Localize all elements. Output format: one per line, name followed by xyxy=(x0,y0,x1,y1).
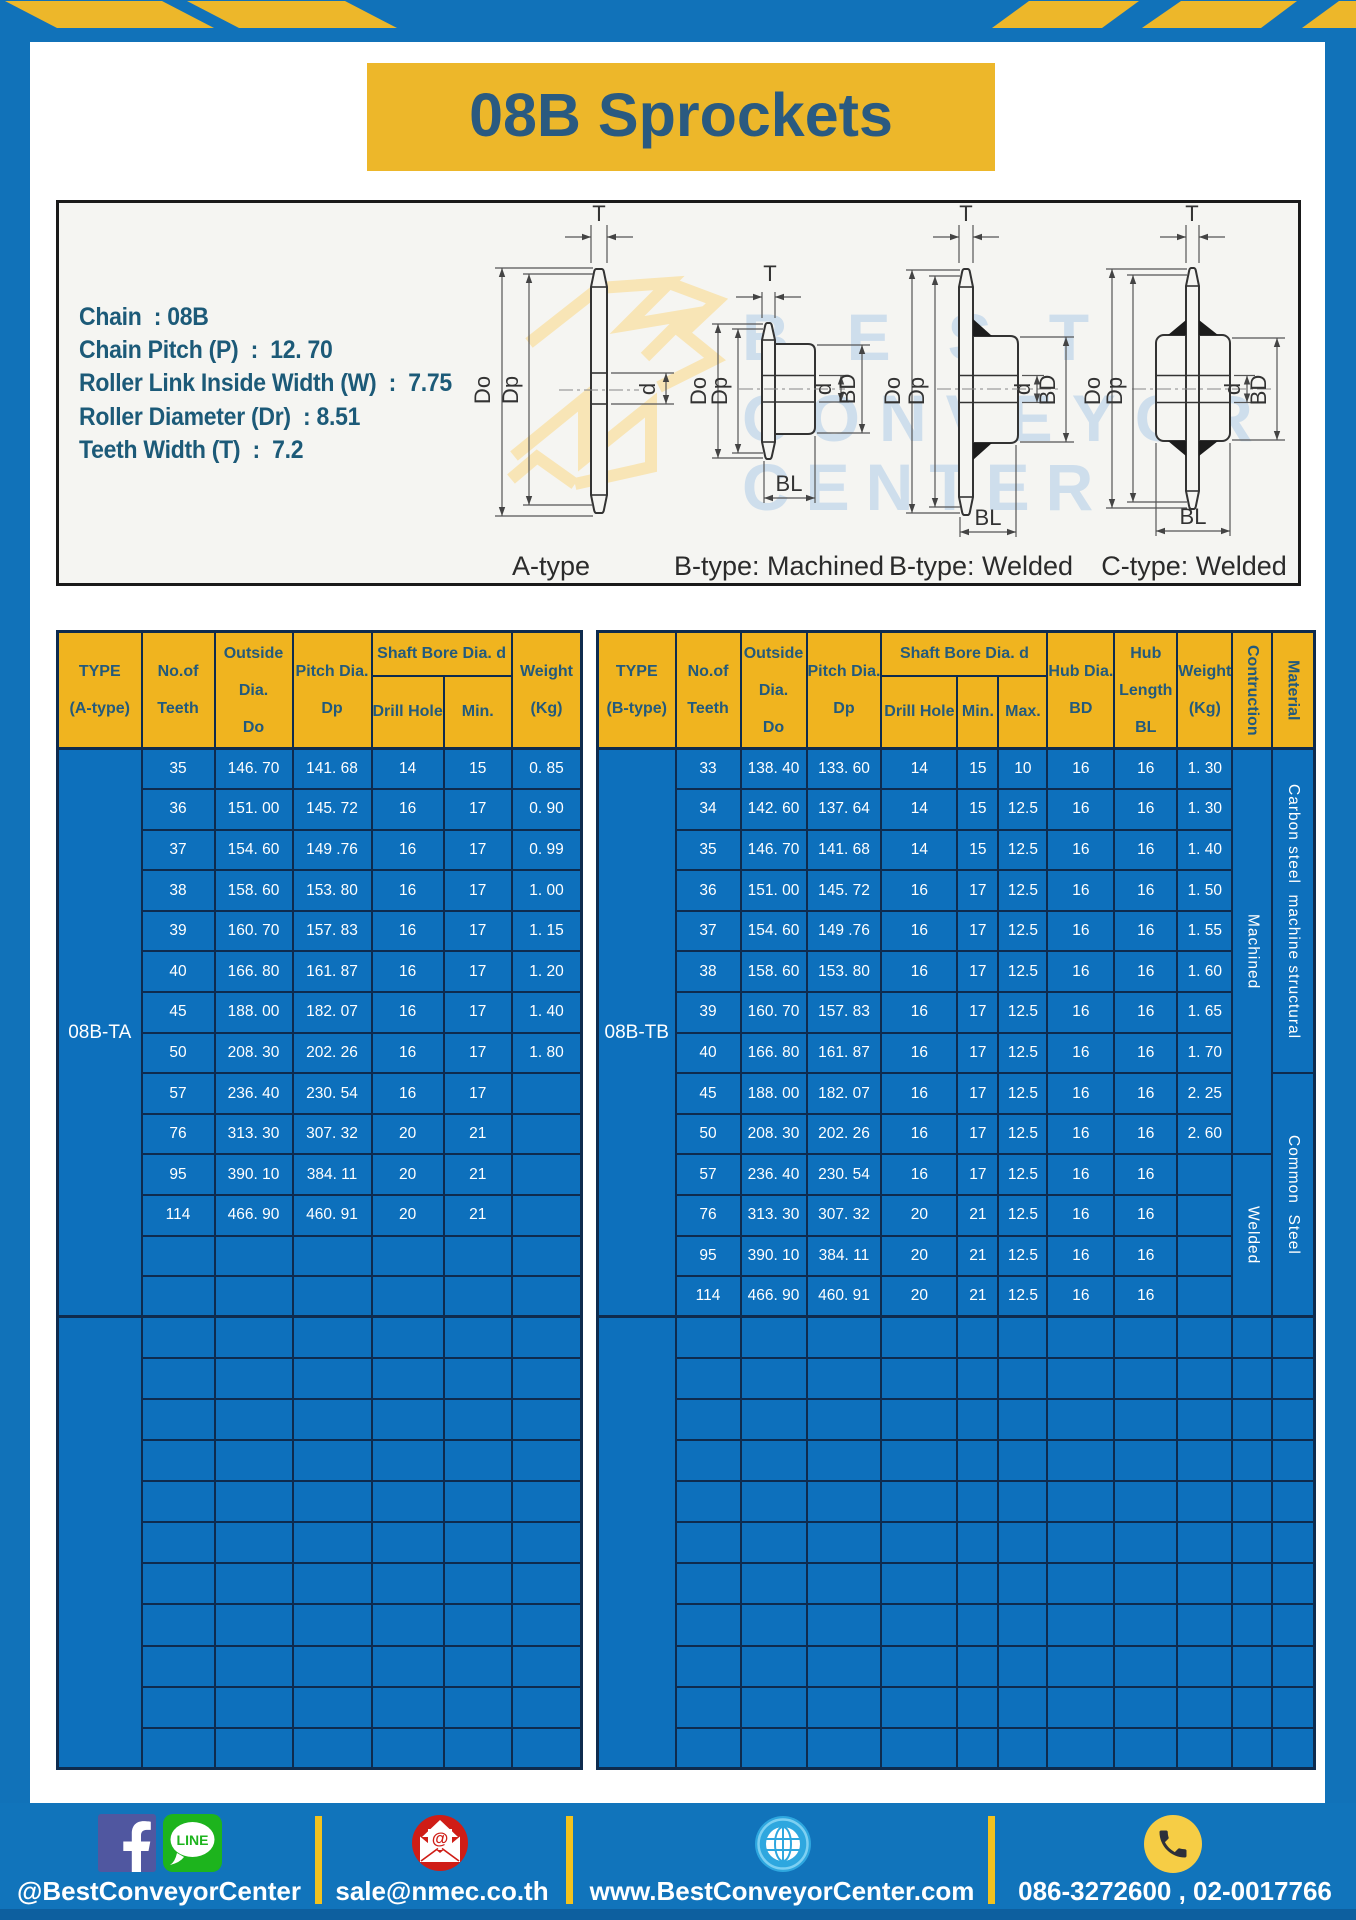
svg-text:Do: Do xyxy=(880,377,905,405)
svg-text:d: d xyxy=(811,383,836,395)
svg-text:d: d xyxy=(635,383,660,395)
svg-text:T: T xyxy=(1185,203,1198,226)
svg-text:LINE: LINE xyxy=(177,1832,209,1848)
svg-text:Do: Do xyxy=(470,376,495,404)
svg-text:Dp: Dp xyxy=(904,377,929,405)
svg-text:B-type: Machined: B-type: Machined xyxy=(674,551,884,581)
svg-text:T: T xyxy=(959,203,972,226)
svg-text:B-type: Welded: B-type: Welded xyxy=(889,551,1073,581)
svg-text:A-type: A-type xyxy=(512,551,590,581)
svg-text:d: d xyxy=(1220,383,1245,395)
svg-text:C-type: Welded: C-type: Welded xyxy=(1101,551,1287,581)
svg-text:BD: BD xyxy=(1035,375,1060,406)
svg-text:BD: BD xyxy=(1246,375,1271,406)
svg-text:Dp: Dp xyxy=(707,377,732,405)
svg-text:@: @ xyxy=(432,1829,449,1848)
svg-text:BL: BL xyxy=(1180,504,1207,529)
svg-text:BD: BD xyxy=(835,374,860,405)
svg-text:Dp: Dp xyxy=(498,376,523,404)
svg-text:T: T xyxy=(592,203,605,226)
svg-text:d: d xyxy=(1010,383,1035,395)
svg-text:Dp: Dp xyxy=(1102,377,1127,405)
svg-text:BL: BL xyxy=(975,505,1002,530)
svg-text:BL: BL xyxy=(776,471,803,496)
svg-text:T: T xyxy=(763,261,776,286)
